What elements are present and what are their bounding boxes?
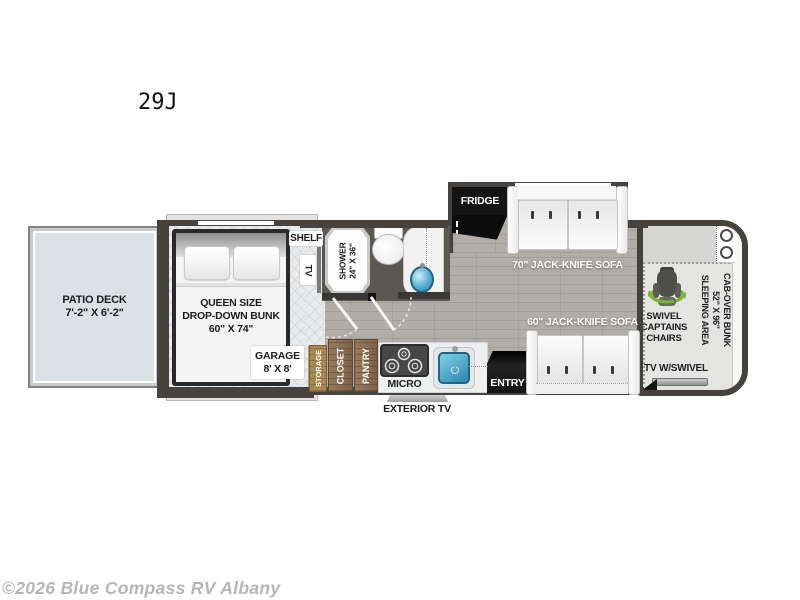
shower-dims: 24" X 36" xyxy=(348,243,358,279)
sofa70-button xyxy=(549,211,552,219)
exterior-tv-icon xyxy=(387,395,448,402)
micro-label: MICRO xyxy=(377,378,432,390)
pantry-label: PANTRY xyxy=(361,348,371,384)
kitchen-sink-icon xyxy=(433,347,475,389)
bed-label-line2: DROP-DOWN BUNK xyxy=(182,310,280,323)
stove-icon xyxy=(380,344,429,377)
sofa60-label: 60" JACK-KNIFE SOFA xyxy=(520,316,645,328)
shower: SHOWER 24" X 36" xyxy=(325,227,370,294)
chairs-label-block: SWIVEL CAPTAINS CHAIRS xyxy=(637,311,694,344)
sofa60-button xyxy=(547,366,550,374)
fridge-handle xyxy=(456,221,458,227)
chairs-line3: CHAIRS xyxy=(646,333,681,344)
sofa70-button xyxy=(531,211,534,219)
garage-dims: 8' X 8' xyxy=(263,363,291,376)
patio-deck: PATIO DECK 7'-2" X 6'-2" xyxy=(28,226,161,388)
swivel-chair-icon xyxy=(648,266,686,316)
counter-slide-line xyxy=(452,366,488,367)
top-wall-right xyxy=(628,220,648,228)
sofa70-button xyxy=(578,211,581,219)
sofa70-cushion-left xyxy=(518,200,568,250)
sofa70-button xyxy=(596,211,599,219)
sofa-70 xyxy=(507,186,626,252)
bath-sink-icon xyxy=(410,266,434,293)
sofa60-cushion-right xyxy=(583,335,629,384)
tv-mount-slat xyxy=(317,247,321,293)
shelf-label: SHELF xyxy=(290,233,322,244)
storage-label: STORAGE xyxy=(314,350,323,387)
sink-drain xyxy=(451,366,459,374)
bed-label: QUEEN SIZE DROP-DOWN BUNK 60" X 74" xyxy=(176,297,286,336)
rear-wall xyxy=(157,220,166,398)
pillow-left xyxy=(184,246,230,280)
blanket-seam xyxy=(176,283,286,287)
cab-bunk-line2: 52" X 96" xyxy=(711,291,722,329)
patio-deck-label: PATIO DECK xyxy=(62,294,126,307)
storage-cabinet: STORAGE xyxy=(309,345,327,392)
patio-deck-dims: 7'-2" X 6'-2" xyxy=(65,307,123,320)
sofa60-button xyxy=(565,366,568,374)
sofa-60 xyxy=(526,330,638,393)
sink-basin xyxy=(438,352,470,384)
cab-tv-icon xyxy=(652,378,708,386)
entry-label: ENTRY xyxy=(487,377,528,389)
top-wall-left xyxy=(300,220,448,228)
patio-deck-surface: PATIO DECK 7'-2" X 6'-2" xyxy=(33,231,156,383)
garage-tv-label: TV xyxy=(303,264,314,276)
sink-faucet-icon xyxy=(452,346,458,352)
sofa60-button xyxy=(611,366,614,374)
exterior-tv-label: EXTERIOR TV xyxy=(356,403,478,415)
cab-tv-label: TV W/SWIVEL xyxy=(643,363,709,374)
bed-label-line3: 60" X 74" xyxy=(209,323,253,336)
cupholder-circle xyxy=(720,246,733,259)
cupholder-circle xyxy=(720,229,733,242)
fridge-icon: FRIDGE xyxy=(452,187,508,215)
sofa60-button xyxy=(593,366,596,374)
sofa60-arm-right xyxy=(628,330,640,395)
watermark: ©2026 Blue Compass RV Albany xyxy=(2,578,280,599)
closet-cabinet: CLOSET xyxy=(328,339,353,392)
cab-bunk-label-block: CAB-OVER BUNK 52" X 96" SLEEPING AREA xyxy=(695,262,737,358)
cab-section: CAB-OVER BUNK 52" X 96" SLEEPING AREA SW… xyxy=(637,220,748,396)
cab-bunk-line1: CAB-OVER BUNK xyxy=(722,273,733,347)
cab-cupholders xyxy=(716,226,735,263)
bath-slide-line xyxy=(426,228,427,266)
sofa70-cushion-right xyxy=(568,200,618,250)
toilet-icon xyxy=(372,234,405,265)
garage-label-box: GARAGE 8' X 8' xyxy=(251,346,304,379)
chairs-line1: SWIVEL xyxy=(646,311,681,322)
entry-step: ENTRY xyxy=(487,351,528,393)
bath-faucet-icon xyxy=(420,263,425,268)
pillow-right xyxy=(233,246,280,280)
pantry-cabinet: PANTRY xyxy=(354,339,378,392)
shower-label-block: SHOWER 24" X 36" xyxy=(338,242,358,279)
bed-label-line1: QUEEN SIZE xyxy=(200,297,262,310)
cab-bunk-line3: SLEEPING AREA xyxy=(700,275,711,346)
garage-window xyxy=(198,221,274,225)
sofa70-label: 70" JACK-KNIFE SOFA xyxy=(505,259,630,271)
fridge-label: FRIDGE xyxy=(461,195,499,207)
shelf-label-box: SHELF xyxy=(289,231,323,246)
shower-label: SHOWER xyxy=(338,242,348,279)
garage-label: GARAGE xyxy=(255,350,300,363)
chairs-line2: CAPTAINS xyxy=(641,322,687,333)
sofa60-backrest xyxy=(536,383,628,394)
closet-label: CLOSET xyxy=(336,347,346,384)
page-title: 29J xyxy=(138,90,178,115)
sofa70-backrest xyxy=(517,186,616,200)
stove-burners-icon xyxy=(382,346,427,375)
sofa60-cushion-left xyxy=(537,335,583,384)
shower-pan: SHOWER 24" X 36" xyxy=(328,230,367,291)
garage-tv-box: TV xyxy=(300,255,316,285)
floorplan-page: 29J PATIO DECK 7'-2" X 6'-2" QUEEN SIZE … xyxy=(0,0,800,600)
